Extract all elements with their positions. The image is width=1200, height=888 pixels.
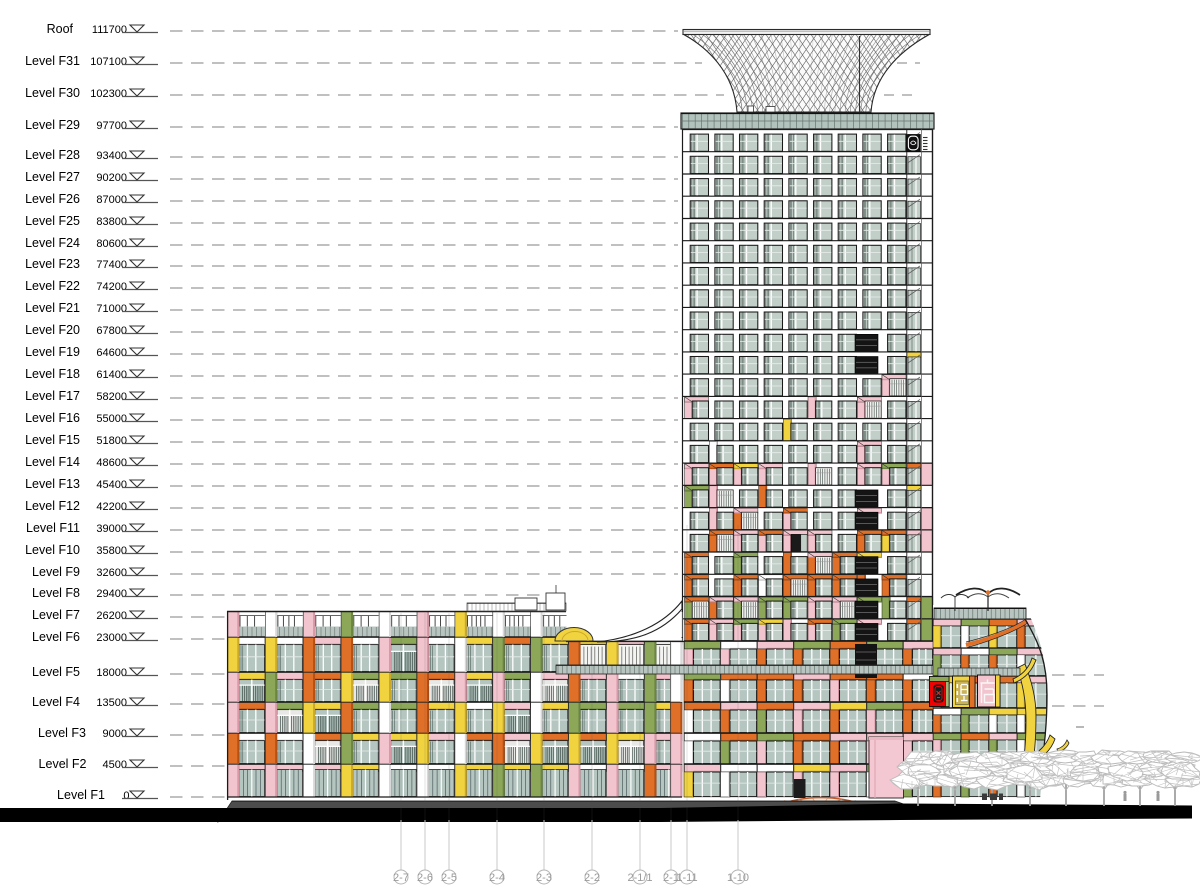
svg-text:Level F18: Level F18 [25,367,80,381]
svg-text:2-7: 2-7 [393,872,409,884]
svg-text:Level F16: Level F16 [25,411,80,425]
svg-text:93400: 93400 [96,150,127,162]
svg-text:Level F11: Level F11 [26,521,80,535]
svg-text:18000: 18000 [96,667,127,679]
svg-text:48600: 48600 [96,457,127,469]
svg-text:51800: 51800 [96,435,127,447]
svg-text:2-4: 2-4 [489,872,505,884]
svg-text:64600: 64600 [96,347,127,359]
svg-text:2-3: 2-3 [536,872,552,884]
svg-text:26200: 26200 [96,610,127,622]
svg-text:80600: 80600 [96,238,127,250]
svg-text:Level F24: Level F24 [25,236,80,250]
svg-text:Level F15: Level F15 [25,433,80,447]
svg-text:Level F2: Level F2 [39,757,87,771]
svg-text:87000: 87000 [96,194,127,206]
svg-text:Level F21: Level F21 [25,301,80,315]
svg-text:Level F26: Level F26 [25,192,80,206]
svg-text:55000: 55000 [96,413,127,425]
svg-text:2-1/1: 2-1/1 [627,872,652,884]
svg-text:45400: 45400 [96,479,127,491]
svg-text:Level F27: Level F27 [25,170,80,184]
svg-text:Level F3: Level F3 [38,726,86,740]
svg-text:Level F7: Level F7 [32,608,80,622]
svg-text:Level F31: Level F31 [25,54,80,68]
svg-text:Level F19: Level F19 [25,345,80,359]
svg-text:74200: 74200 [96,281,127,293]
svg-text:Level F20: Level F20 [25,323,80,337]
svg-text:Roof: Roof [47,22,74,36]
svg-text:Level F30: Level F30 [25,86,80,100]
svg-text:Level F25: Level F25 [25,214,80,228]
svg-text:107100: 107100 [90,56,127,68]
svg-text:35800: 35800 [96,545,127,557]
svg-text:23000: 23000 [96,632,127,644]
svg-text:Level F6: Level F6 [32,630,80,644]
svg-text:Level F8: Level F8 [32,586,80,600]
svg-text:39000: 39000 [96,523,127,535]
svg-text:Level F10: Level F10 [25,543,80,557]
svg-text:13500: 13500 [96,697,127,709]
svg-text:Level F4: Level F4 [32,695,80,709]
svg-text:0: 0 [123,790,129,802]
svg-text:Level F13: Level F13 [25,477,80,491]
svg-text:61400: 61400 [96,369,127,381]
svg-text:111700: 111700 [92,24,127,36]
svg-text:1-11: 1-11 [676,872,697,884]
svg-text:67800: 67800 [96,325,127,337]
svg-text:32600: 32600 [96,567,127,579]
svg-text:42200: 42200 [96,501,127,513]
svg-text:Level F17: Level F17 [25,389,80,403]
svg-text:97700: 97700 [96,120,127,132]
svg-text:102300: 102300 [90,88,127,100]
svg-text:83800: 83800 [96,216,127,228]
svg-text:Level F9: Level F9 [32,565,80,579]
svg-text:Level F12: Level F12 [25,499,80,513]
svg-text:Level F28: Level F28 [25,148,80,162]
svg-text:77400: 77400 [96,259,127,271]
svg-text:71000: 71000 [96,303,127,315]
svg-text:58200: 58200 [96,391,127,403]
svg-text:9000: 9000 [103,728,127,740]
svg-text:Level F5: Level F5 [32,665,80,679]
svg-text:1-10: 1-10 [727,872,749,884]
svg-text:Level F23: Level F23 [25,257,80,271]
svg-text:4500: 4500 [103,759,127,771]
svg-text:29400: 29400 [96,588,127,600]
svg-text:Level F22: Level F22 [25,279,80,293]
svg-text:90200: 90200 [96,172,127,184]
svg-text:Level F29: Level F29 [25,118,80,132]
svg-text:2-5: 2-5 [441,872,457,884]
svg-text:Level F14: Level F14 [25,455,80,469]
svg-text:Level F1: Level F1 [57,788,105,802]
svg-text:2-2: 2-2 [584,872,600,884]
svg-text:2-6: 2-6 [417,872,433,884]
